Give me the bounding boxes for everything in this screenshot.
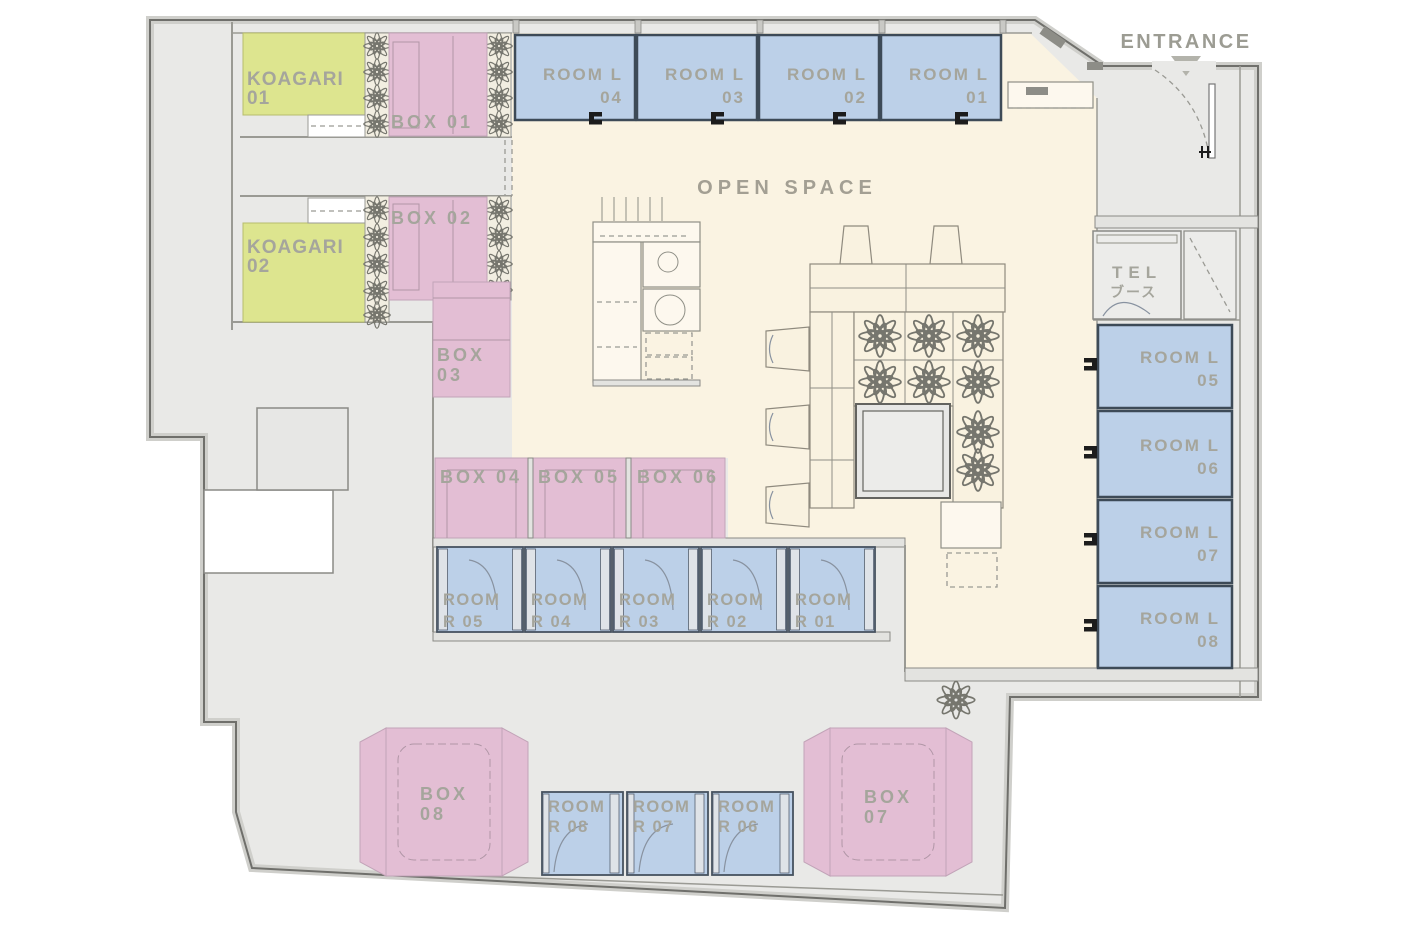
room-r-07: ROOM R 07	[627, 792, 708, 875]
svg-text:ROOM: ROOM	[707, 591, 764, 609]
box-08: BOX 08	[360, 728, 528, 876]
room-l-02: ROOM L 02	[759, 35, 879, 125]
svg-text:ROOM L: ROOM L	[787, 65, 867, 84]
room-r-01: ROOM R 01	[789, 547, 875, 632]
chair	[766, 405, 809, 449]
svg-text:ROOM: ROOM	[795, 591, 852, 609]
svg-text:BOX 01: BOX 01	[391, 112, 473, 132]
svg-text:R 05: R 05	[443, 613, 484, 631]
svg-text:BOX: BOX	[864, 787, 912, 807]
svg-text:ROOM: ROOM	[633, 798, 690, 816]
svg-text:ROOM: ROOM	[548, 798, 605, 816]
chair	[766, 327, 809, 371]
floor-plan-stage: OPEN SPACE	[0, 0, 1413, 951]
svg-text:ROOM L: ROOM L	[1140, 609, 1220, 628]
storage-closet	[1184, 231, 1236, 319]
tel-booth: TEL ブース	[1093, 231, 1181, 319]
svg-text:07: 07	[1197, 546, 1220, 565]
svg-text:BOX 05: BOX 05	[538, 467, 620, 487]
svg-text:06: 06	[1197, 459, 1220, 478]
svg-text:01: 01	[966, 88, 989, 107]
stool	[930, 226, 962, 264]
door-leaf	[1209, 84, 1215, 158]
svg-text:03: 03	[722, 88, 745, 107]
void-cutout	[204, 490, 333, 573]
svg-text:R 07: R 07	[633, 818, 674, 836]
svg-text:R 02: R 02	[707, 613, 748, 631]
svg-text:04: 04	[600, 88, 623, 107]
room-r-02: ROOM R 02	[701, 547, 787, 632]
svg-text:KOAGARI: KOAGARI	[247, 69, 344, 90]
svg-text:08: 08	[420, 804, 446, 824]
svg-text:BOX: BOX	[437, 345, 485, 365]
svg-text:01: 01	[247, 88, 270, 109]
svg-text:02: 02	[844, 88, 867, 107]
svg-text:02: 02	[247, 256, 270, 277]
svg-text:08: 08	[1197, 632, 1220, 651]
box-01: BOX 01	[389, 33, 487, 136]
svg-text:R 06: R 06	[718, 818, 759, 836]
svg-text:BOX 04: BOX 04	[440, 467, 522, 487]
stair-block	[257, 408, 348, 490]
chair	[766, 483, 809, 527]
svg-text:BOX: BOX	[420, 784, 468, 804]
svg-text:05: 05	[1197, 371, 1220, 390]
svg-text:03: 03	[437, 365, 463, 385]
svg-text:ROOM L: ROOM L	[1140, 523, 1220, 542]
kitchen-unit	[593, 197, 700, 386]
svg-text:07: 07	[864, 807, 890, 827]
room-l-05: ROOM L 05	[1084, 325, 1232, 408]
room-r-04: ROOM R 04	[525, 547, 611, 632]
svg-text:ROOM: ROOM	[718, 798, 775, 816]
svg-text:ROOM: ROOM	[619, 591, 676, 609]
svg-text:BOX 06: BOX 06	[637, 467, 719, 487]
svg-text:ROOM: ROOM	[531, 591, 588, 609]
room-r-06: ROOM R 06	[712, 792, 793, 875]
entrance-label: ENTRANCE	[1120, 31, 1251, 53]
side-cabinet	[941, 502, 1001, 548]
box-03: BOX 03	[433, 282, 510, 397]
room-r-08: ROOM R 08	[542, 792, 623, 875]
room-l-08: ROOM L 08	[1084, 586, 1232, 668]
svg-text:R 01: R 01	[795, 613, 836, 631]
svg-text:KOAGARI: KOAGARI	[247, 237, 344, 258]
svg-text:R 08: R 08	[548, 818, 589, 836]
svg-text:R 03: R 03	[619, 613, 660, 631]
room-r-05: ROOM R 05	[437, 547, 523, 632]
open-space-label: OPEN SPACE	[697, 177, 877, 199]
svg-text:ROOM L: ROOM L	[665, 65, 745, 84]
svg-text:ROOM: ROOM	[443, 591, 500, 609]
entrance-opening	[1152, 61, 1216, 71]
room-l-01: ROOM L 01	[881, 35, 1001, 125]
room-r-03: ROOM R 03	[613, 547, 699, 632]
svg-text:TEL: TEL	[1112, 263, 1162, 282]
room-l-04: ROOM L 04	[515, 35, 635, 125]
svg-text:ROOM L: ROOM L	[1140, 436, 1220, 455]
svg-text:R 04: R 04	[531, 613, 572, 631]
svg-text:ROOM L: ROOM L	[909, 65, 989, 84]
svg-text:ROOM L: ROOM L	[543, 65, 623, 84]
svg-text:BOX 02: BOX 02	[391, 208, 473, 228]
svg-text:ブース: ブース	[1110, 284, 1157, 300]
room-l-03: ROOM L 03	[637, 35, 757, 125]
box-07: BOX 07	[804, 728, 972, 876]
svg-text:ROOM L: ROOM L	[1140, 348, 1220, 367]
room-l-07: ROOM L 07	[1084, 500, 1232, 583]
box-row-04-06: BOX 04 BOX 05 BOX 06	[435, 458, 725, 538]
room-l-06: ROOM L 06	[1084, 411, 1232, 497]
stool	[840, 226, 872, 264]
